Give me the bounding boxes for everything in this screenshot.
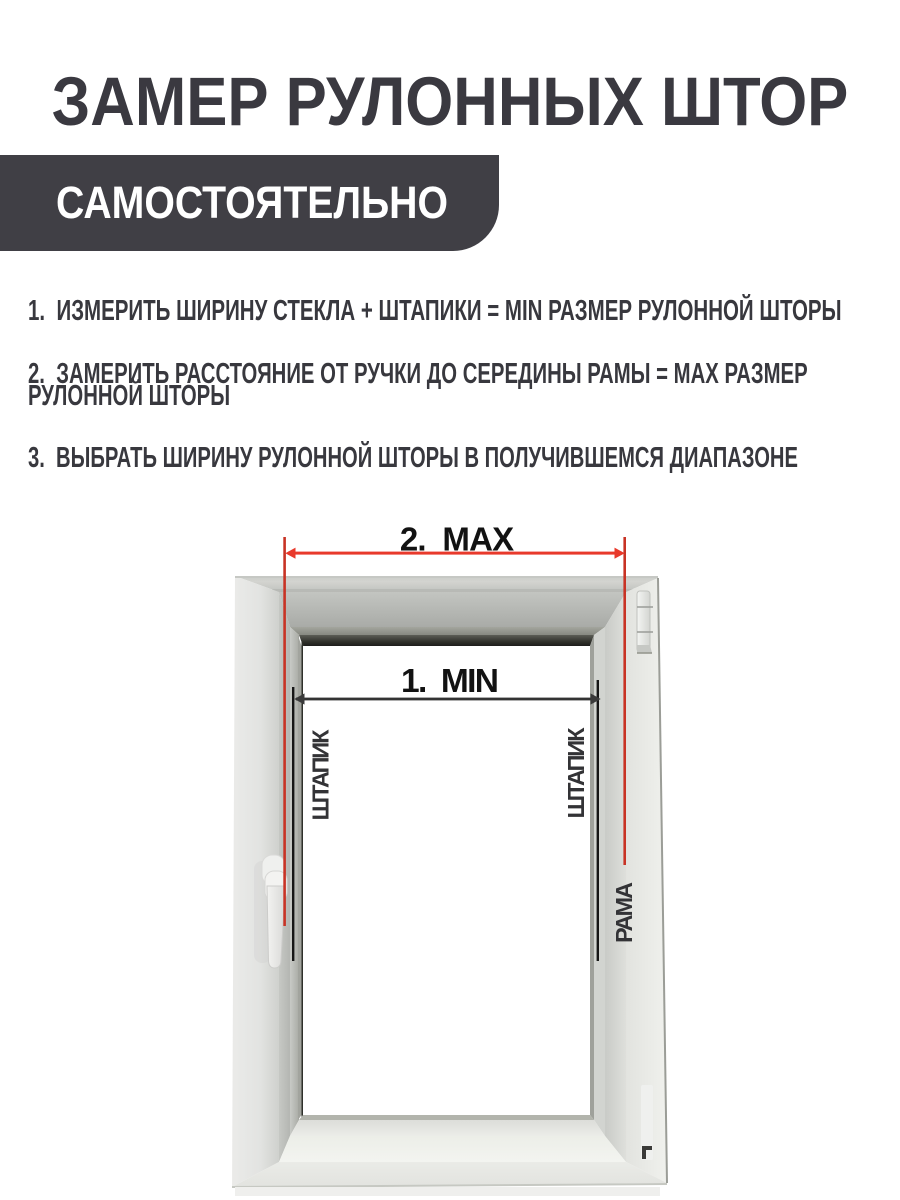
svg-text:РАМА: РАМА bbox=[611, 882, 637, 943]
svg-text:ШТАПИК: ШТАПИК bbox=[308, 729, 334, 821]
svg-text:1. MIN: 1. MIN bbox=[401, 663, 499, 700]
svg-text:ШТАПИК: ШТАПИК bbox=[563, 727, 589, 819]
svg-text:2. MAX: 2. MAX bbox=[400, 521, 514, 558]
